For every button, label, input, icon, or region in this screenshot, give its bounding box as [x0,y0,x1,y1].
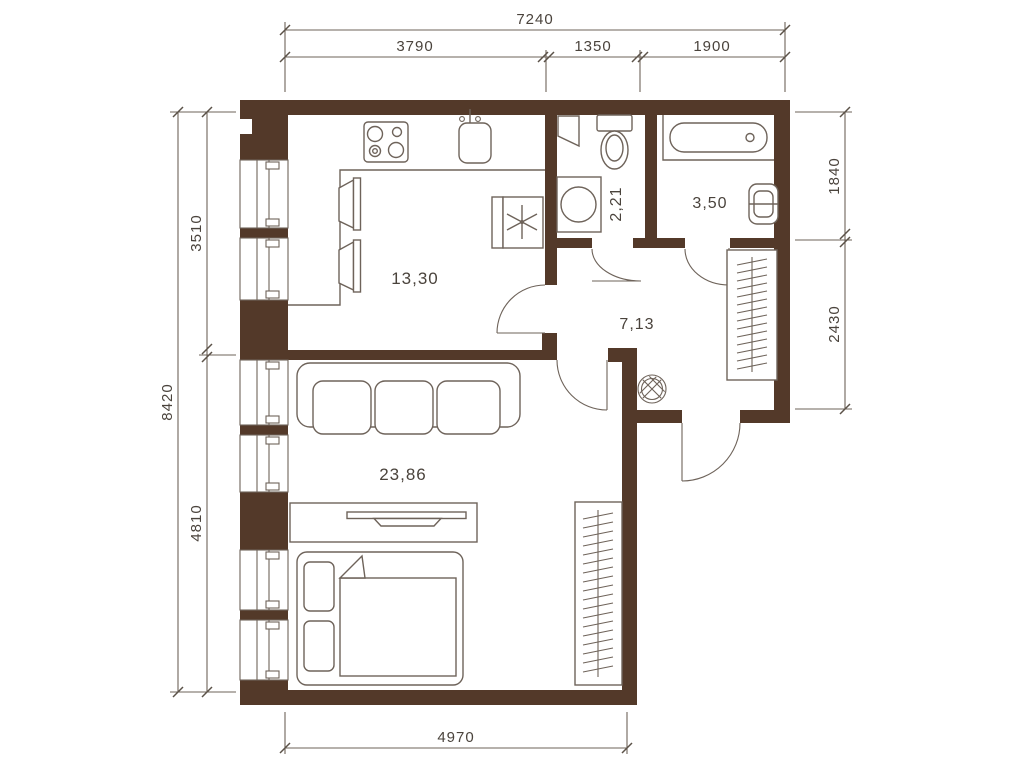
washing-machine [557,177,601,232]
floor-plan: 7240 3790 1350 1900 8420 3510 4810 1840 … [0,0,1013,768]
wall-kitchen-living-divider [286,350,542,360]
wall-bath-south-2 [730,238,774,248]
wall-kitchen-east [545,100,557,285]
dim-top-seg-1: 3790 [396,38,433,55]
wardrobe-living [575,502,622,685]
wall-left-pier [240,300,288,360]
wall-left-pier [240,492,288,550]
window [240,435,288,492]
wall-wc-south [545,238,592,248]
wall-living-east [622,360,637,705]
window [240,550,288,610]
window [240,360,288,425]
wall-entry-right [740,410,790,423]
entry-door-arc [682,423,740,481]
living-room-furniture [290,363,622,685]
wall-bath-south-1 [633,238,685,248]
bed [297,552,463,685]
wall-kitchen-door-jamb [542,333,557,360]
dim-left-overall: 8420 [159,383,176,420]
wc-door-arc [592,249,641,281]
wall-wc-bath [645,115,657,248]
dim-left-seg-2: 4810 [188,504,205,541]
room-label-wc: 2,21 [608,186,625,221]
kitchen-sink [459,109,491,163]
room-label-hallway: 7,13 [619,316,654,333]
vent-shaft-symbol [636,373,670,403]
wall-left-seg [240,425,288,435]
toilet [597,115,632,169]
stove [364,122,408,162]
wall-bottom [240,690,637,705]
dining-chair [339,240,361,292]
wall-left-seg [240,610,288,620]
room-label-living-room: 23,86 [379,465,427,484]
refrigerator-symbol [492,197,543,248]
dim-top-seg-3: 1900 [693,38,730,55]
wall-left-seg [240,228,288,238]
doors [497,248,740,481]
dim-right-seg-2: 2430 [826,305,843,342]
bathroom-door-arc [685,248,729,285]
dim-top-seg-2: 1350 [574,38,611,55]
dining-chair [339,178,361,230]
window [240,238,288,300]
bathroom-sink [749,184,778,224]
floor-plan-drawing: 7240 3790 1350 1900 8420 3510 4810 1840 … [0,0,1013,768]
hallway-furniture [636,250,777,403]
dim-left-seg-1: 3510 [188,214,205,251]
living-room-door-arc [557,360,607,410]
wall-top [240,100,790,115]
room-label-kitchen: 13,30 [391,269,439,288]
wall-junction [608,348,637,362]
wardrobe-hall [727,250,777,380]
dim-right-seg-1: 1840 [826,157,843,194]
room-label-bathroom: 3,50 [692,195,727,212]
window [240,160,288,228]
wall-entry-left [636,410,682,423]
dim-bottom-overall: 4970 [437,729,474,746]
wall-notch [238,119,252,134]
window [240,620,288,680]
kitchen-door-arc [497,285,545,333]
tv-stand [290,503,477,542]
windows [240,160,288,680]
dim-top-overall: 7240 [516,11,553,28]
bathtub [663,115,774,160]
duct-shaft [558,116,579,146]
sofa [297,363,520,434]
